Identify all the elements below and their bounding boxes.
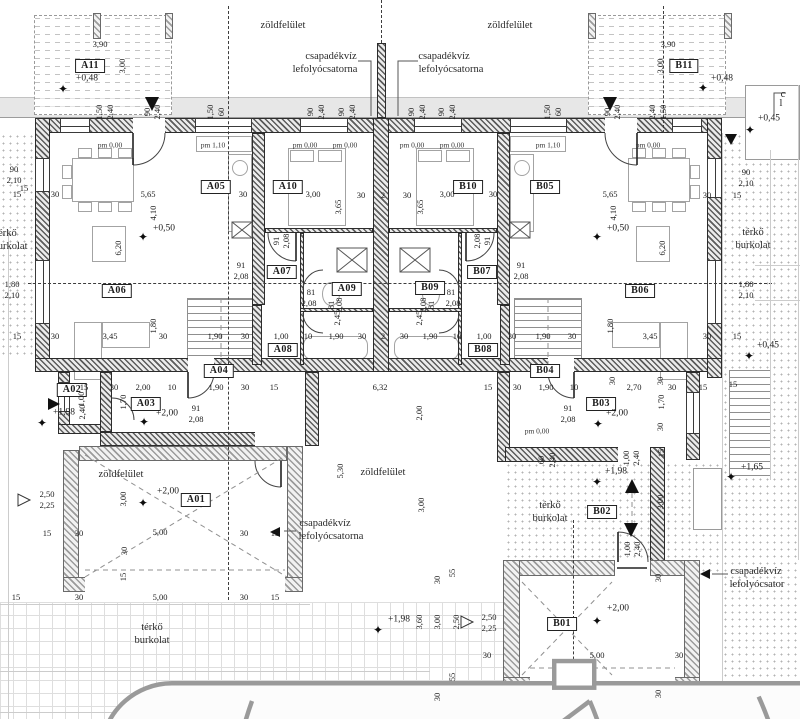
text-annotation: csapadékvíz: [418, 52, 469, 63]
dimension-label: 91: [483, 237, 492, 246]
benchmark-icon: ✦: [745, 124, 755, 136]
wall-segment: [100, 432, 258, 446]
dimension-label: 2,00: [415, 406, 424, 421]
dimension-label: 90: [742, 168, 751, 177]
dimension-label: 2,10: [739, 179, 754, 188]
dimension-label: 30: [668, 383, 677, 392]
garage-wall: [79, 446, 287, 461]
benchmark-icon: ✦: [37, 417, 47, 429]
dimension-label: 1,90: [536, 332, 551, 341]
dimension-label: 3,65: [416, 200, 425, 215]
pier: [588, 13, 596, 39]
exterior-landing: [693, 468, 722, 530]
floor-plan-canvas: ✦✦✦✦✦✦✦✦✦✦✦✦✦✦A11B11A05A10B10B05A07B07A0…: [0, 0, 800, 719]
level-triangle-icon: [18, 494, 30, 506]
furniture: [632, 148, 646, 158]
dimension-label: 10: [304, 332, 313, 341]
benchmark-icon: ✦: [139, 416, 149, 428]
text-annotation: l: [780, 99, 783, 110]
dimension-label: 81: [307, 288, 316, 297]
dimension-label: 15: [733, 332, 742, 341]
furniture: [72, 158, 134, 202]
garage-wall: [684, 560, 700, 692]
dimension-label: 60: [537, 456, 546, 465]
room-label-b04: B04: [530, 364, 560, 378]
dimension-label: 30: [110, 383, 119, 392]
paving-bottom: [0, 602, 505, 719]
dimension-label: 15: [271, 529, 280, 538]
dimension-label: 1,80: [739, 280, 754, 289]
dimension-label: 2,40: [632, 451, 641, 466]
dimension-label: 10: [570, 383, 579, 392]
pier: [93, 13, 101, 39]
dimension-label: 60: [217, 108, 226, 117]
dimension-label: 3,00: [119, 492, 128, 507]
wall-segment: [389, 228, 497, 233]
dimension-label: 91: [192, 404, 201, 413]
dimension-label: 2,40: [78, 405, 87, 420]
dimension-label: 5,65: [603, 190, 618, 199]
axis-line: [228, 6, 229, 600]
dimension-label: 15: [484, 383, 493, 392]
dimension-label: 3,00: [440, 190, 455, 199]
benchmark-icon: ✦: [698, 82, 708, 94]
furniture: [690, 165, 700, 179]
window: [414, 118, 462, 133]
elevation-label: +1,98: [605, 467, 627, 477]
dimension-label: 30: [241, 383, 250, 392]
dimension-label: 2,08: [473, 234, 482, 249]
furniture: [446, 150, 470, 162]
garage-wall: [503, 560, 520, 692]
boundary-line: [0, 671, 430, 672]
text-annotation: zöldfelület: [361, 468, 406, 479]
boundary-line: [770, 150, 771, 480]
text-annotation: burkolat: [736, 241, 771, 252]
furniture: [98, 148, 112, 158]
dimension-label: 1,00: [623, 542, 632, 557]
dimension-label: 90: [407, 108, 416, 117]
dimension-label: 2,25: [482, 624, 497, 633]
furniture: [628, 158, 690, 202]
window: [60, 118, 90, 133]
dimension-label: 10: [453, 332, 462, 341]
dimension-label: 30: [483, 651, 492, 660]
sill-height-label: pm 1,10: [201, 141, 226, 149]
dimension-label: 2,08: [335, 298, 344, 313]
dimension-label: 30: [568, 332, 577, 341]
dimension-label: 15: [733, 191, 742, 200]
wall-segment: [707, 118, 722, 366]
dimension-label: 5,30: [336, 464, 345, 479]
boundary-line: [0, 712, 800, 713]
dimension-label: 5,00: [153, 593, 168, 602]
dimension-label: 30: [159, 332, 168, 341]
dimension-label: 91: [564, 404, 573, 413]
room-label-b08: B08: [468, 343, 498, 357]
window: [510, 118, 567, 133]
dimension-label: 30: [240, 529, 249, 538]
wall-segment: [650, 447, 665, 575]
dimension-label: 2,25: [40, 501, 55, 510]
dimension-label: 1,80: [149, 319, 158, 334]
dimension-label: 10: [168, 383, 177, 392]
dimension-label: 30: [400, 332, 409, 341]
dimension-label: 1,90: [539, 383, 554, 392]
dimension-label: 2,50: [452, 615, 461, 630]
sill-height-label: pm 0,00: [333, 141, 358, 149]
dimension-label: 30: [240, 593, 249, 602]
dimension-label: 4,10: [149, 206, 158, 221]
room-label-a01: A01: [181, 493, 211, 507]
room-label-a06: A06: [102, 284, 132, 298]
room-label-b07: B07: [467, 265, 497, 279]
text-annotation: burkolat: [135, 636, 170, 647]
furniture: [290, 150, 314, 162]
dimension-label: 2,40: [153, 105, 162, 120]
window: [672, 118, 702, 133]
dimension-label: 2,45: [415, 311, 424, 326]
dimension-label: 3,00: [656, 59, 665, 74]
sill-height-label: pm 0,00: [636, 141, 661, 149]
dimension-label: 3,00: [306, 190, 321, 199]
room-label-a08: A08: [268, 343, 298, 357]
dimension-label: 30: [241, 332, 250, 341]
text-annotation: lefolyócsatorna: [293, 65, 358, 76]
dimension-label: 2,10: [739, 291, 754, 300]
elevation-label: +0,45: [758, 114, 780, 124]
room-label-a05: A05: [201, 180, 231, 194]
furniture: [118, 202, 132, 212]
dimension-label: 6,20: [658, 241, 667, 256]
sink: [232, 160, 248, 176]
dimension-label: 1,90: [423, 332, 438, 341]
elevation-label: +2,00: [606, 409, 628, 419]
dimension-label: 5,00: [153, 528, 168, 537]
text-annotation: térkő: [141, 623, 163, 634]
wall-segment: [497, 133, 510, 305]
dimension-label: 55: [448, 673, 457, 682]
dimension-label: 30: [51, 332, 60, 341]
room-label-b05: B05: [530, 180, 560, 194]
dimension-label: 81: [447, 288, 456, 297]
dimension-label: 2,40: [418, 105, 427, 120]
garage-door-opening: [85, 577, 285, 592]
dimension-label: 2,10: [5, 291, 20, 300]
furniture: [78, 202, 92, 212]
elevation-label: +2,00: [156, 409, 178, 419]
dimension-label: 1,50: [206, 105, 215, 120]
elevation-label: +2,00: [607, 604, 629, 614]
text-annotation: térkő: [0, 229, 17, 240]
dimension-label: 30: [357, 191, 366, 200]
dimension-label: 30: [656, 377, 665, 386]
axis-line: [573, 520, 574, 710]
dimension-label: 30: [654, 690, 663, 699]
furniture: [98, 202, 112, 212]
furniture: [118, 148, 132, 158]
text-annotation: lefolyócsatorna: [419, 65, 484, 76]
text-annotation: burkolat: [0, 242, 28, 253]
boundary-line: [755, 265, 800, 266]
furniture: [672, 202, 686, 212]
text-annotation: lefolyócsator: [730, 580, 785, 591]
dimension-label: 1,70: [657, 395, 666, 410]
boundary-line: [798, 85, 799, 560]
dimension-label: 90: [437, 108, 446, 117]
dimension-label: 3,45: [103, 332, 118, 341]
text-annotation: térkő: [742, 228, 764, 239]
dimension-label: 90: [337, 108, 346, 117]
elevation-label: +0,48: [76, 74, 98, 84]
text-annotation: csapadékvíz: [299, 519, 350, 530]
boundary-line: [722, 133, 723, 719]
dimension-label: 1,80: [5, 280, 20, 289]
furniture: [690, 185, 700, 199]
room-label-b06: B06: [625, 284, 655, 298]
benchmark-icon: ✦: [373, 624, 383, 636]
dimension-label: 30: [513, 383, 522, 392]
room-label-a09: A09: [332, 282, 362, 296]
dimension-label: 2,45: [333, 311, 342, 326]
window: [300, 118, 348, 133]
furniture: [632, 202, 646, 212]
sill-height-label: pm 0,00: [525, 427, 550, 435]
dimension-label: 2,08: [514, 272, 529, 281]
axis-line: [381, 0, 382, 43]
dimension-label: 30: [654, 574, 663, 583]
furniture: [652, 202, 666, 212]
dimension-label: 90: [306, 108, 315, 117]
wall-segment: [252, 305, 262, 365]
dimension-label: 3,00: [118, 59, 127, 74]
elevation-label: +1,98: [53, 408, 75, 418]
dimension-label: 3,90: [93, 40, 108, 49]
dimension-label: 2,08: [302, 299, 317, 308]
dimension-label: 90: [603, 108, 612, 117]
text-annotation: zöldfelület: [261, 21, 306, 32]
wall-segment: [58, 424, 105, 434]
text-annotation: burkolat: [533, 514, 568, 525]
dimension-label: 30: [656, 423, 665, 432]
dimension-label: 2,50: [40, 490, 55, 499]
window: [195, 118, 252, 133]
sill-height-label: pm 0,00: [98, 141, 123, 149]
benchmark-icon: ✦: [593, 418, 603, 430]
dimension-label: 3,00: [656, 495, 665, 510]
dimension-label: 2,00: [136, 383, 151, 392]
door-opening: [618, 560, 650, 576]
benchmark-icon: ✦: [58, 83, 68, 95]
wall-segment: [377, 43, 386, 118]
dimension-label: 6,32: [373, 383, 388, 392]
pier: [724, 13, 732, 39]
dimension-label: 15: [80, 383, 89, 392]
dimension-label: 15: [657, 449, 666, 458]
dimension-label: 4,10: [609, 206, 618, 221]
elevation-label: +1,98: [388, 615, 410, 625]
dimension-label: 1,70: [119, 395, 128, 410]
boundary-line: [8, 230, 9, 719]
dimension-label: 2,40: [448, 105, 457, 120]
dimension-label: 2,40: [613, 105, 622, 120]
dimension-label: 30: [508, 332, 517, 341]
dimension-label: 5,00: [590, 651, 605, 660]
dimension-label: 2: [381, 191, 385, 200]
dimension-label: 1,00: [477, 332, 492, 341]
forecourt-b-paving: [505, 462, 650, 575]
benchmark-icon: ✦: [744, 350, 754, 362]
dimension-label: 3,65: [334, 200, 343, 215]
dimension-label: 2,40: [317, 105, 326, 120]
room-label-a10: A10: [273, 180, 303, 194]
dimension-label: 15: [271, 593, 280, 602]
dimension-label: 91: [272, 237, 281, 246]
dimension-label: 90: [143, 108, 152, 117]
room-label-b01: B01: [547, 617, 577, 631]
furniture: [318, 150, 342, 162]
room-label-a07: A07: [267, 265, 297, 279]
dimension-label: 30: [239, 190, 248, 199]
dimension-label: 15: [270, 383, 279, 392]
dimension-label: 2: [381, 332, 385, 341]
room-label-a11: A11: [75, 59, 105, 73]
door-opening: [605, 118, 637, 133]
dimension-label: 2,40: [106, 105, 115, 120]
dimension-label: 1,50: [543, 105, 552, 120]
axis-line: [28, 283, 772, 284]
dimension-label: 30: [75, 529, 84, 538]
dimension-label: 3,60: [415, 615, 424, 630]
room-label-b10: B10: [453, 180, 483, 194]
text-annotation: csapadékvíz: [730, 567, 781, 578]
dimension-label: 1,00: [274, 332, 289, 341]
sill-height-label: pm 0,00: [400, 141, 425, 149]
sill-height-label: pm 0,00: [440, 141, 465, 149]
elevation-label: +2,00: [157, 487, 179, 497]
room-label-b02: B02: [587, 505, 617, 519]
dimension-label: 3,90: [661, 40, 676, 49]
benchmark-icon: ✦: [138, 497, 148, 509]
dimension-label: 2,08: [234, 272, 249, 281]
dimension-label: 2,40: [633, 542, 642, 557]
furniture: [62, 185, 72, 199]
dimension-label: 3,45: [643, 332, 658, 341]
dimension-label: 15: [699, 383, 708, 392]
dimension-label: 30: [403, 191, 412, 200]
dimension-label: 2,40: [648, 105, 657, 120]
wall-segment: [252, 133, 265, 305]
sill-height-label: pm 0,00: [293, 141, 318, 149]
dimension-label: 2,50: [482, 613, 497, 622]
dimension-label: 30: [703, 332, 712, 341]
sill-height-label: pm 1,10: [536, 141, 561, 149]
dimension-label: 15: [13, 332, 22, 341]
dimension-label: 2,40: [548, 453, 557, 468]
room-label-b11: B11: [669, 59, 698, 73]
dimension-label: 2,08: [189, 415, 204, 424]
text-annotation: zöldfelület: [99, 470, 144, 481]
dimension-label: 90: [10, 165, 19, 174]
garage-wall: [63, 450, 79, 592]
dimension-label: 1,80: [606, 319, 615, 334]
furniture: [62, 165, 72, 179]
window: [35, 158, 50, 192]
dimension-label: 30: [433, 576, 442, 585]
dimension-label: 2,08: [446, 299, 461, 308]
boundary-line: [0, 604, 310, 605]
elevation-label: +0,48: [711, 74, 733, 84]
dimension-label: 6,20: [114, 241, 123, 256]
text-annotation: térkő: [539, 501, 561, 512]
dimension-label: 30: [489, 190, 498, 199]
wall-segment: [265, 228, 373, 233]
dimension-label: 91: [237, 261, 246, 270]
dimension-label: 81: [427, 301, 436, 310]
wall-segment: [707, 358, 722, 378]
dimension-label: 60: [554, 108, 563, 117]
dimension-label: 91: [517, 261, 526, 270]
furniture: [652, 148, 666, 158]
dimension-label: 1,00: [622, 451, 631, 466]
elevation-label: +0,50: [153, 224, 175, 234]
dimension-label: 15: [119, 573, 128, 582]
text-annotation: zöldfelület: [488, 21, 533, 32]
dimension-label: 3,00: [433, 615, 442, 630]
dimension-label: 30: [675, 651, 684, 660]
dimension-label: 2,70: [627, 383, 642, 392]
elevation-label: +0,45: [757, 341, 779, 351]
dimension-label: 1,90: [209, 383, 224, 392]
dimension-label: 30: [703, 191, 712, 200]
dimension-label: 15: [12, 593, 21, 602]
door-opening: [133, 118, 165, 133]
dimension-label: 15: [43, 529, 52, 538]
room-label-a04: A04: [204, 364, 234, 378]
benchmark-icon: ✦: [592, 476, 602, 488]
dimension-label: 30: [608, 377, 617, 386]
dimension-label: 1,90: [329, 332, 344, 341]
benchmark-icon: ✦: [726, 471, 736, 483]
door-opening: [255, 432, 281, 446]
dimension-label: 30: [358, 332, 367, 341]
sink: [514, 160, 530, 176]
dimension-label: 30: [75, 593, 84, 602]
dimension-label: 30: [433, 693, 442, 702]
dimension-label: 55: [448, 569, 457, 578]
wall-segment: [305, 372, 319, 446]
dimension-label: 15: [729, 380, 738, 389]
dimension-label: 30: [51, 190, 60, 199]
dimension-label: 5,65: [141, 190, 156, 199]
window: [707, 260, 722, 324]
text-annotation: lefolyócsatorna: [299, 532, 364, 543]
dimension-label: 15: [20, 184, 29, 193]
text-annotation: csapadékvíz: [305, 52, 356, 63]
dimension-label: 3,00: [417, 498, 426, 513]
wall-segment: [35, 118, 50, 366]
furniture: [78, 148, 92, 158]
dimension-label: 1,50: [95, 105, 104, 120]
benchmark-icon: ✦: [138, 231, 148, 243]
elevation-label: +1,65: [741, 463, 763, 473]
dimension-label: 2,08: [282, 234, 291, 249]
window: [686, 392, 700, 434]
benchmark-icon: ✦: [592, 615, 602, 627]
elevation-label: +0,50: [607, 224, 629, 234]
benchmark-icon: ✦: [592, 231, 602, 243]
dimension-label: 30: [120, 547, 129, 556]
